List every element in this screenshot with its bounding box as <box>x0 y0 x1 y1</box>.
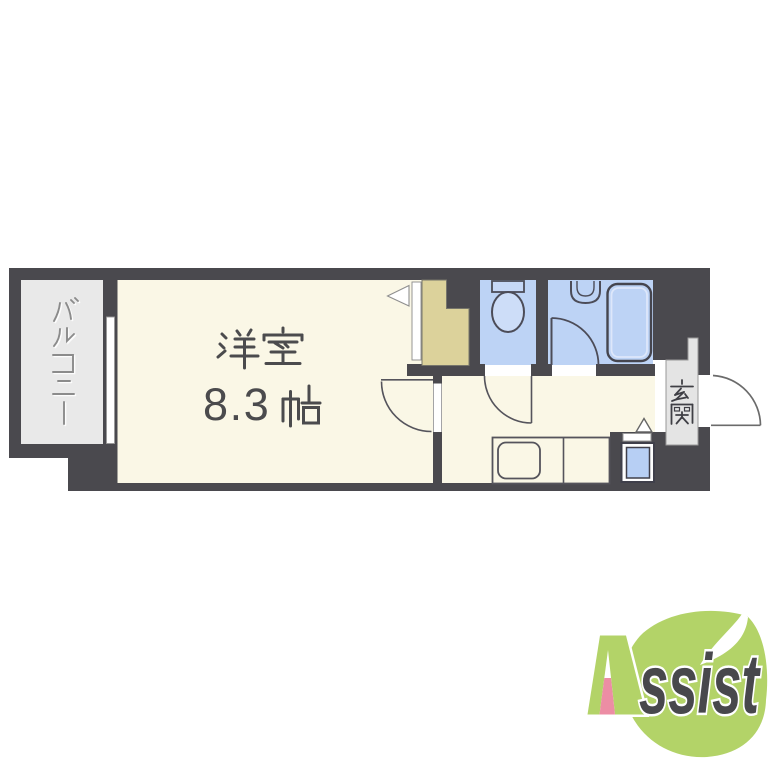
svg-text:ssist: ssist <box>639 637 761 731</box>
svg-text:8.3: 8.3 <box>203 379 270 430</box>
